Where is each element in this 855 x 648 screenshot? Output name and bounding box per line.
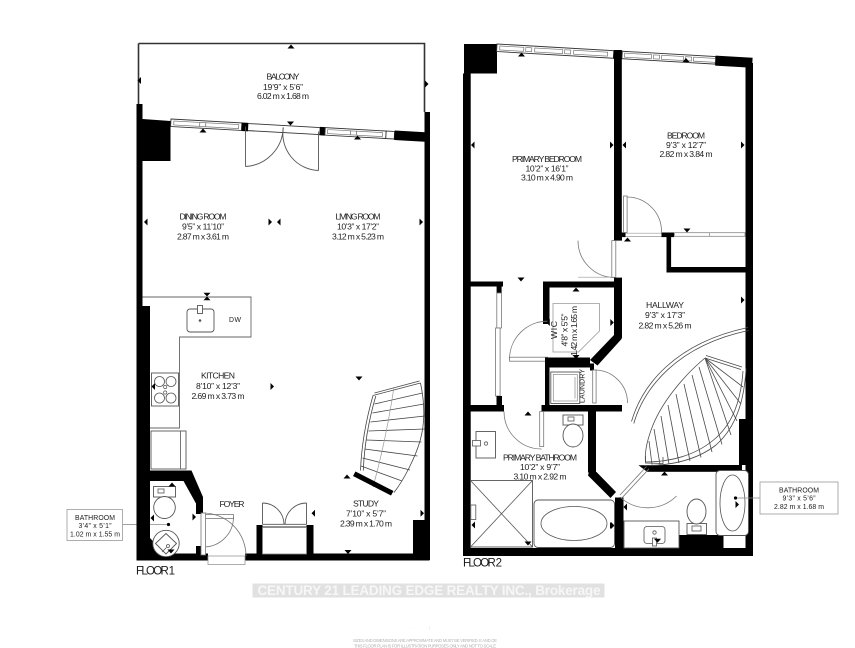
svg-text:7’10” x 5’7”: 7’10” x 5’7”	[346, 509, 386, 519]
svg-text:10’2” x 9’7”: 10’2” x 9’7”	[520, 462, 560, 472]
svg-text:LAUNDRY: LAUNDRY	[580, 369, 587, 403]
svg-text:STUDY: STUDY	[353, 499, 379, 509]
svg-text:LIVING ROOM: LIVING ROOM	[336, 212, 381, 222]
svg-text:9’5” x 11’10”: 9’5” x 11’10”	[182, 222, 224, 232]
svg-text:2.82 m x 3.84 m: 2.82 m x 3.84 m	[660, 149, 713, 159]
svg-text:3.12 m x 5.23 m: 3.12 m x 5.23 m	[332, 232, 384, 242]
svg-text:1.42 m x 1.65 m: 1.42 m x 1.65 m	[569, 306, 579, 356]
svg-text:KITCHEN: KITCHEN	[201, 371, 235, 381]
svg-text:BEDROOM: BEDROOM	[667, 131, 705, 141]
svg-text:3’4” x 5’1”: 3’4” x 5’1”	[79, 523, 113, 530]
svg-text:FOYER: FOYER	[220, 499, 245, 509]
svg-text:2.39 m x 1.70 m: 2.39 m x 1.70 m	[340, 519, 392, 529]
svg-text:3.10 m x 2.92 m: 3.10 m x 2.92 m	[514, 472, 567, 482]
svg-text:DW: DW	[229, 317, 241, 324]
svg-text:4’8” x 5’5”: 4’8” x 5’5”	[560, 313, 570, 346]
svg-text:SIZES AND DIMENSIONS ARE APPRO: SIZES AND DIMENSIONS ARE APPROXIMATE AND…	[353, 638, 497, 643]
svg-text:2.82 m x 5.26 m: 2.82 m x 5.26 m	[639, 321, 692, 331]
svg-text:3.10 m x 4.90 m: 3.10 m x 4.90 m	[521, 173, 573, 183]
svg-text:1.02 m x 1.55 m: 1.02 m x 1.55 m	[70, 532, 120, 539]
svg-text:PRIMARY BEDROOM: PRIMARY BEDROOM	[512, 154, 582, 164]
svg-text:CENTURY 21 LEADING EDGE REALTY: CENTURY 21 LEADING EDGE REALTY INC., Bro…	[258, 583, 601, 598]
svg-text:10’3” x 17’2”: 10’3” x 17’2”	[337, 222, 379, 232]
svg-text:2.82 m x 1.68 m: 2.82 m x 1.68 m	[774, 504, 824, 511]
svg-text:BATHROOM: BATHROOM	[779, 488, 819, 495]
svg-text:FLOOR 2: FLOOR 2	[463, 558, 502, 570]
svg-text:HALLWAY: HALLWAY	[646, 300, 684, 310]
svg-text:FLOOR 1: FLOOR 1	[136, 566, 175, 578]
svg-text:9’3” x 5’6”: 9’3” x 5’6”	[783, 496, 817, 503]
svg-text:DINING ROOM: DINING ROOM	[180, 212, 227, 222]
svg-text:2.69 m x 3.73 m: 2.69 m x 3.73 m	[192, 391, 245, 401]
svg-text:THIS FLOOR PLAN IS FOR ILLUSTR: THIS FLOOR PLAN IS FOR ILLUSTRATION PURP…	[354, 644, 496, 648]
svg-text:9’3” x 17’3”: 9’3” x 17’3”	[645, 310, 685, 320]
svg-text:BALCONY: BALCONY	[267, 72, 300, 82]
svg-text:WIC: WIC	[549, 321, 559, 339]
svg-text:6.02 m x 1.68 m: 6.02 m x 1.68 m	[257, 91, 309, 101]
svg-text:PRIMARY BATHROOM: PRIMARY BATHROOM	[503, 453, 577, 463]
svg-text:8’10” x 12’3”: 8’10” x 12’3”	[196, 381, 240, 391]
svg-text:BATHROOM: BATHROOM	[75, 515, 115, 522]
svg-text:2.87 m x 3.61 m: 2.87 m x 3.61 m	[177, 232, 229, 242]
